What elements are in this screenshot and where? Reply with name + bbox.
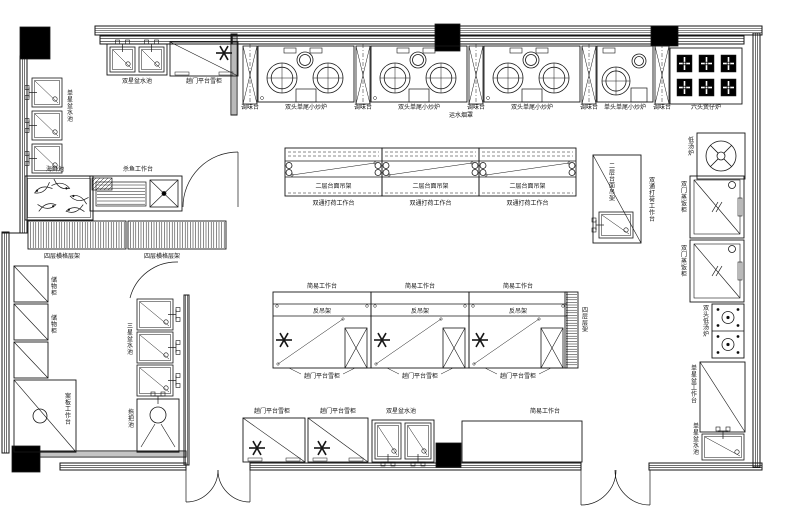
right-wall — [753, 33, 760, 467]
svg-text:拖把池: 拖把池 — [128, 408, 134, 429]
svg-text:双头单尾小炒炉: 双头单尾小炒炉 — [285, 103, 327, 111]
condiment-stand-4: 调味台 — [580, 44, 598, 111]
interior-door-upper — [183, 152, 238, 207]
storage-cabinet-2 — [14, 304, 48, 340]
rice-steamer-1 — [690, 176, 744, 238]
svg-text:杀鱼工作台: 杀鱼工作台 — [123, 165, 153, 173]
interior-door-left — [130, 262, 178, 298]
svg-text:案板工作台: 案板工作台 — [65, 392, 71, 426]
double-wok-stove-3: 双头单尾小炒炉 — [484, 46, 580, 111]
prep-island-3: 二层台面吊架双通打荷工作台 — [479, 148, 576, 207]
svg-text:四层横格层架: 四层横格层架 — [44, 252, 80, 260]
column-2 — [435, 24, 460, 51]
topleft-room-wall — [100, 36, 232, 44]
svg-text:调味台: 调味台 — [653, 103, 671, 111]
svg-text:双门蒸饭柜: 双门蒸饭柜 — [681, 245, 687, 278]
svg-text:调味台: 调味台 — [580, 103, 598, 111]
storage-cabinet-3 — [14, 342, 48, 378]
svg-text:简易工作台: 简易工作台 — [530, 407, 560, 415]
four-tier-rack-1: 四层横格层架 — [28, 221, 126, 260]
condiment-stand-2: 调味台 — [354, 44, 372, 111]
platform-fridge-top: 趟门平台雪柜 — [170, 42, 238, 85]
svg-text:双通打荷工作台: 双通打荷工作台 — [506, 199, 548, 207]
svg-text:简易工作台: 简易工作台 — [307, 282, 337, 290]
svg-text:趟门平台雪柜: 趟门平台雪柜 — [402, 372, 438, 380]
corner-sink-label: 单星盆水池 — [693, 422, 699, 456]
svg-text:储物柜: 储物柜 — [51, 276, 57, 297]
svg-text:简易工作台: 简易工作台 — [405, 282, 435, 290]
svg-text:四层层架: 四层层架 — [582, 307, 588, 334]
left-wall-lower — [2, 232, 9, 453]
double-door-left — [186, 470, 250, 502]
svg-text:趟门平台雪柜: 趟门平台雪柜 — [320, 407, 356, 415]
svg-text:双星盆水池: 双星盆水池 — [386, 407, 416, 415]
rice-steamer-label-2: 双门蒸饭柜 — [681, 245, 687, 278]
svg-text:调味台: 调味台 — [354, 103, 372, 111]
svg-text:反吊架: 反吊架 — [313, 307, 331, 315]
storage-cabinet-label-2: 储物柜 — [51, 314, 57, 335]
svg-text:二层台面吊架: 二层台面吊架 — [315, 182, 351, 190]
fish-prep-sink — [150, 180, 178, 207]
column-5 — [12, 446, 40, 472]
island-unit-3: 反吊架简易工作台趟门平台雪柜 — [469, 282, 567, 380]
floor-plan: 双星盆水池趟门平台雪柜单星盆水池海鲜池杀鱼工作台四层横格层架四层横格层架储物柜储… — [0, 0, 785, 513]
triple-basin-sink-1 — [137, 299, 180, 330]
counter-fridge-1: 趟门平台雪柜 — [243, 407, 305, 462]
svg-text:双头单尾小炒炉: 双头单尾小炒炉 — [511, 103, 553, 111]
svg-text:趟门平台雪柜: 趟门平台雪柜 — [186, 77, 222, 85]
soup-stove-label: 低汤炉 — [688, 136, 694, 157]
svg-text:低汤炉: 低汤炉 — [688, 136, 694, 157]
svg-text:双通打荷工作台: 双通打荷工作台 — [649, 177, 655, 223]
single-wok-stove: 单头单尾小炒炉 — [597, 46, 653, 111]
island-unit-1: 反吊架简易工作台趟门平台雪柜 — [273, 282, 371, 380]
svg-text:趟门平台雪柜: 趟门平台雪柜 — [254, 407, 290, 415]
bottom-wall-center — [250, 463, 581, 470]
svg-text:双星盆水池: 双星盆水池 — [122, 77, 152, 85]
double-soup-stove-label: 双头低汤炉 — [703, 305, 709, 338]
svg-text:双通打荷工作台: 双通打荷工作台 — [409, 199, 451, 207]
corner-table-label: 双通打荷工作台 — [649, 177, 655, 223]
svg-text:调味台: 调味台 — [241, 103, 259, 111]
svg-text:二层台面吊架: 二层台面吊架 — [412, 182, 448, 190]
svg-text:海鲜池: 海鲜池 — [46, 165, 64, 173]
hood-note: 运水烟罩 — [449, 111, 473, 119]
bottom-wall-left — [60, 463, 186, 470]
corner-prep-table — [593, 155, 641, 243]
single-basin-sink-1 — [25, 78, 62, 107]
double-basin-sink-top: 双星盆水池 — [107, 40, 167, 85]
svg-text:储物柜: 储物柜 — [51, 314, 57, 335]
prep-island-1: 二层台面吊架双通打荷工作台 — [285, 148, 382, 207]
column-1 — [20, 27, 50, 59]
double-soup-stove — [712, 304, 744, 358]
svg-text:简易工作台: 简易工作台 — [503, 282, 533, 290]
triple-basin-sink-2 — [137, 332, 180, 363]
column-3 — [651, 26, 678, 46]
svg-text:双头低汤炉: 双头低汤炉 — [703, 305, 709, 338]
condiment-stand-5: 调味台 — [653, 44, 671, 111]
soup-stove — [697, 133, 745, 179]
svg-text:单头单尾小炒炉: 单头单尾小炒炉 — [604, 103, 646, 111]
counter-fridge-2: 趟门平台雪柜 — [308, 407, 368, 462]
svg-text:趟门平台雪柜: 趟门平台雪柜 — [500, 372, 536, 380]
right-work-table — [700, 362, 745, 432]
corner-prep-sink — [592, 212, 633, 238]
column-4 — [436, 443, 461, 467]
triple-sink-label: 三星盆水池 — [127, 323, 133, 356]
chopping-table-label: 案板工作台 — [65, 392, 71, 426]
floor-plan-canvas: 双星盆水池趟门平台雪柜单星盆水池海鲜池杀鱼工作台四层横格层架四层横格层架储物柜储… — [0, 0, 785, 513]
rice-steamer-2 — [690, 240, 744, 302]
right-work-table-label: 单星盆工作台 — [691, 364, 697, 405]
double-basin-sink-bottom: 双星盆水池 — [372, 407, 434, 466]
svg-text:反吊架: 反吊架 — [411, 307, 429, 315]
rice-steamer-label-1: 双门蒸饭柜 — [681, 181, 687, 214]
four-tier-rack-2: 四层横格层架 — [128, 221, 226, 260]
single-sink-label: 单星盆水池 — [67, 89, 73, 123]
svg-text:运水烟罩: 运水烟罩 — [449, 111, 473, 119]
partition-left-room — [184, 295, 189, 465]
svg-text:二层台面吊架: 二层台面吊架 — [509, 182, 545, 190]
fish-prep-drainer — [96, 182, 146, 206]
svg-text:趟门平台雪柜: 趟门平台雪柜 — [304, 372, 340, 380]
svg-text:六头煲仔炉: 六头煲仔炉 — [691, 103, 721, 111]
double-door-right — [581, 470, 650, 505]
mop-sink-label: 拖把池 — [128, 408, 134, 429]
svg-text:单星盆工作台: 单星盆工作台 — [691, 364, 697, 405]
svg-text:二层台面吊架: 二层台面吊架 — [609, 163, 615, 203]
condiment-stand-1: 调味台 — [241, 44, 259, 111]
triple-basin-sink-3 — [137, 365, 180, 396]
single-basin-sink-2 — [25, 111, 62, 140]
left-wall-upper — [20, 56, 27, 233]
bottom-wall-right — [649, 463, 762, 470]
tier-rack-label: 四层层架 — [582, 307, 588, 334]
svg-text:双通打荷工作台: 双通打荷工作台 — [312, 199, 354, 207]
double-wok-stove-2: 双头单尾小炒炉 — [371, 46, 467, 111]
partition-upper — [231, 34, 237, 115]
island-unit-2: 反吊架简易工作台趟门平台雪柜 — [371, 282, 469, 380]
corner-shelf-label: 二层台面吊架 — [609, 163, 615, 203]
svg-text:三星盆水池: 三星盆水池 — [127, 323, 133, 356]
condiment-stand-3: 调味台 — [467, 44, 485, 111]
double-wok-stove-1: 双头单尾小炒炉 — [258, 46, 354, 111]
prep-island-2: 二层台面吊架双通打荷工作台 — [382, 148, 479, 207]
svg-text:调味台: 调味台 — [467, 103, 485, 111]
simple-work-table-bottom: 简易工作台 — [462, 407, 582, 462]
storage-cabinet-1 — [14, 266, 48, 302]
six-burner-stove: 六头煲仔炉 — [670, 48, 742, 111]
svg-text:反吊架: 反吊架 — [509, 307, 527, 315]
mop-sink — [137, 392, 179, 452]
svg-text:单星盆水池: 单星盆水池 — [67, 89, 73, 123]
svg-text:单星盆水池: 单星盆水池 — [693, 422, 699, 456]
svg-text:四层横格层架: 四层横格层架 — [144, 252, 180, 260]
storage-cabinet-label-1: 储物柜 — [51, 276, 57, 297]
svg-text:双头单尾小炒炉: 双头单尾小炒炉 — [398, 103, 440, 111]
svg-text:双门蒸饭柜: 双门蒸饭柜 — [681, 181, 687, 214]
